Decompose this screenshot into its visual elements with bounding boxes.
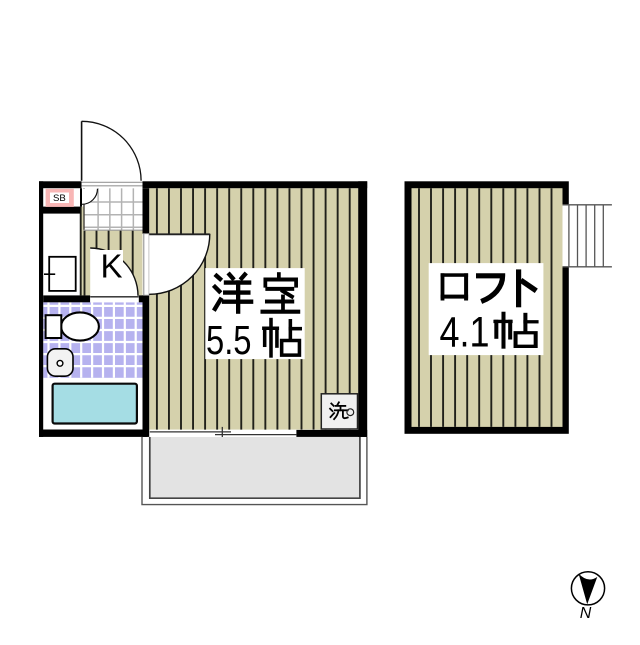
svg-text:K: K bbox=[101, 248, 123, 285]
svg-text:5.5: 5.5 bbox=[206, 317, 252, 363]
svg-text:N: N bbox=[580, 605, 592, 622]
svg-text:SB: SB bbox=[53, 193, 66, 204]
svg-text:4.1: 4.1 bbox=[440, 309, 490, 357]
